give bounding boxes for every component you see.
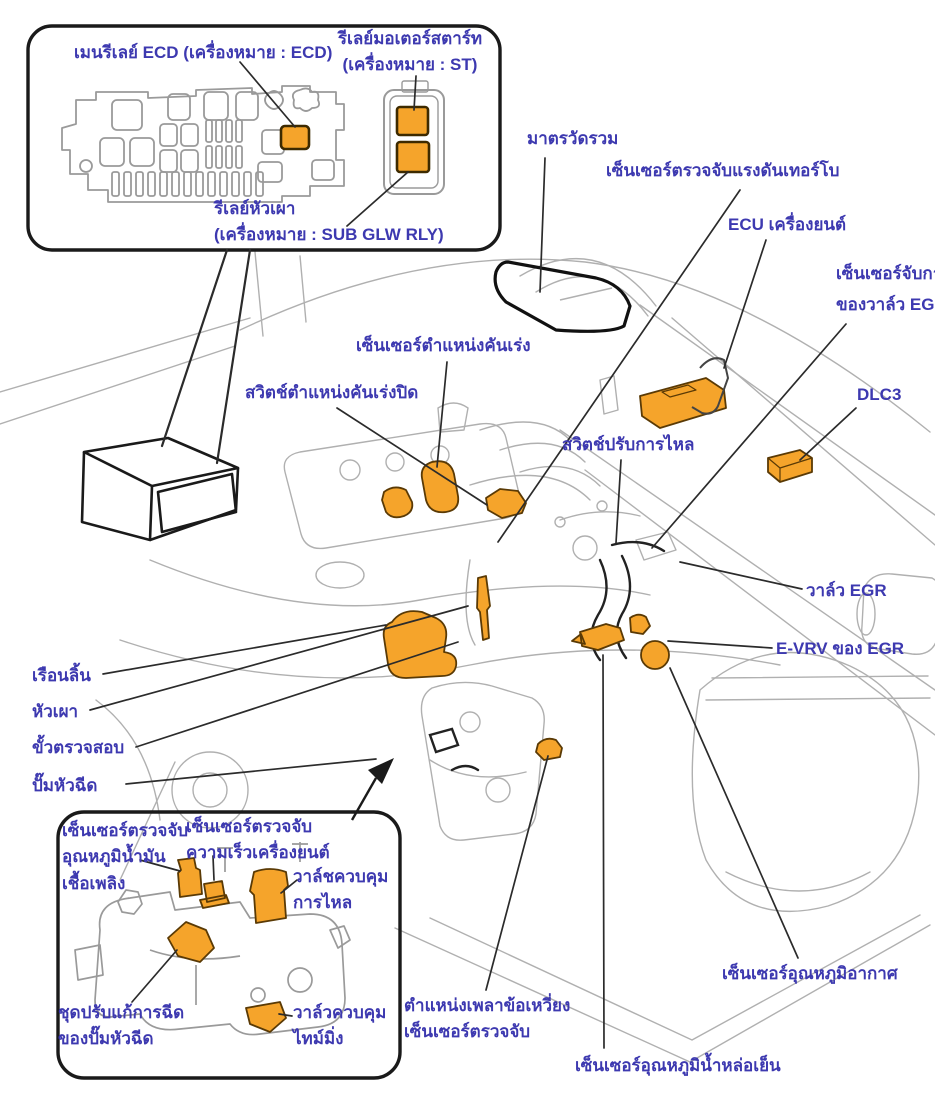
label-injection-correction-unit: ชุดปรับแก้การฉีด ของปั๊มหัวฉีด	[58, 1000, 184, 1053]
leader-combination-meter	[540, 158, 545, 292]
label-evrv-of-egr: E-VRV ของ EGR	[776, 636, 904, 662]
label-fuel-temp-sensor: เซ็นเซอร์ตรวจจับ อุณหภูมิน้ำมัน เชื้อเพล…	[62, 818, 188, 897]
label-main-relay-ecd: เมนรีเลย์ ECD (เครื่องหมาย : ECD)	[74, 40, 332, 66]
label-egr-valve: วาล์ว EGR	[806, 578, 887, 604]
ecd-location-diagram: เมนรีเลย์ ECD (เครื่องหมาย : ECD) รีเลย์…	[0, 0, 935, 1116]
leader-closed-throttle	[337, 408, 487, 505]
leader-flow-switch	[616, 460, 621, 543]
throttle-body-highlight	[384, 611, 457, 678]
label-injection-pump: ปั๊มหัวฉีด	[32, 773, 97, 799]
label-accel-position-sensor: เซ็นเซอร์ตำแหน่งคันเร่ง	[356, 333, 531, 359]
flow-control-valve-highlight	[250, 869, 288, 923]
leader-coolant-sensor	[603, 655, 604, 1048]
engine-speed-sensor-highlight	[200, 881, 229, 908]
leader-check-connector	[136, 642, 458, 747]
air-temp-sensor-highlight	[641, 641, 669, 669]
label-air-temp-sensor: เซ็นเซอร์อุณหภูมิอากาศ	[722, 961, 898, 987]
label-starter-relay: รีเลย์มอเตอร์สตาร์ท (เครื่องหมาย : ST)	[330, 26, 490, 79]
glow-plug-highlight	[477, 576, 490, 640]
label-engine-speed-sensor: เซ็นเซอร์ตรวจจับ ความเร็วเครื่องยนต์	[186, 814, 330, 867]
label-flow-adjusting-switch: สวิตช์ปรับการไหล	[562, 432, 694, 458]
crank-position-sensor-highlight	[536, 739, 562, 760]
label-egr-position-sensor: เซ็นเซอร์จับการ ของวาล์ว EGR	[836, 258, 935, 321]
label-coolant-temp-sensor: เซ็นเซอร์อุณหภูมิน้ำหล่อเย็น	[575, 1053, 781, 1079]
leader-egr-valve	[680, 562, 802, 589]
label-crank-position-sensor: ตำแหน่งเพลาข้อเหวี่ยง เซ็นเซอร์ตรวจจับ	[404, 993, 570, 1046]
closed-throttle-switch-highlight	[382, 487, 412, 517]
glow-relay-highlight	[397, 142, 429, 172]
label-throttle-body: เรือนลิ้น	[32, 663, 91, 689]
timing-control-valve-highlight	[246, 1002, 286, 1032]
combination-meter-outline	[495, 262, 630, 331]
egr-hose-detail	[430, 542, 664, 770]
ecd-main-relay-highlight	[281, 126, 309, 149]
label-combination-meter: มาตรวัดรวม	[527, 126, 618, 152]
leader-injection-pump	[126, 759, 376, 784]
leader-inset-to-engine-2	[217, 250, 250, 463]
accel-position-sensor-highlight	[422, 461, 459, 512]
leader-crank-sensor	[486, 756, 548, 990]
turbo-pressure-sensor-highlight	[486, 489, 526, 518]
leader-main-relay	[240, 62, 295, 127]
label-engine-ecu: ECU เครื่องยนต์	[728, 212, 846, 238]
label-flow-control-valve: วาล์ชควบคุม การไหล	[293, 864, 388, 917]
label-turbo-pressure-sensor: เซ็นเซอร์ตรวจจับแรงดันเทอร์โบ	[606, 158, 839, 184]
label-glow-relay: รีเลย์หัวเผา (เครื่องหมาย : SUB GLW RLY)	[214, 196, 444, 249]
label-glow-plug: หัวเผา	[32, 699, 78, 725]
label-timing-control-valve: วาล์วควบคุม ไทม์มิ่ง	[293, 1000, 386, 1053]
small-egr-sensor-highlight	[630, 615, 650, 634]
ecu-highlight	[640, 378, 726, 428]
label-dlc3: DLC3	[857, 382, 901, 408]
leader-air-temp-sensor	[670, 668, 798, 958]
starter-relay-highlight	[397, 107, 428, 135]
leader-evrv	[668, 641, 772, 648]
engine-relay-box-outline	[82, 438, 238, 540]
coolant-temp-sensor-highlight	[572, 624, 624, 650]
label-closed-throttle-switch: สวิตช์ตำแหน่งคันเร่งปิด	[245, 380, 418, 406]
label-check-connector: ขั้วตรวจสอบ	[32, 735, 124, 761]
leader-inset-to-engine-1	[162, 250, 227, 446]
leader-injection-correction	[132, 950, 177, 1002]
